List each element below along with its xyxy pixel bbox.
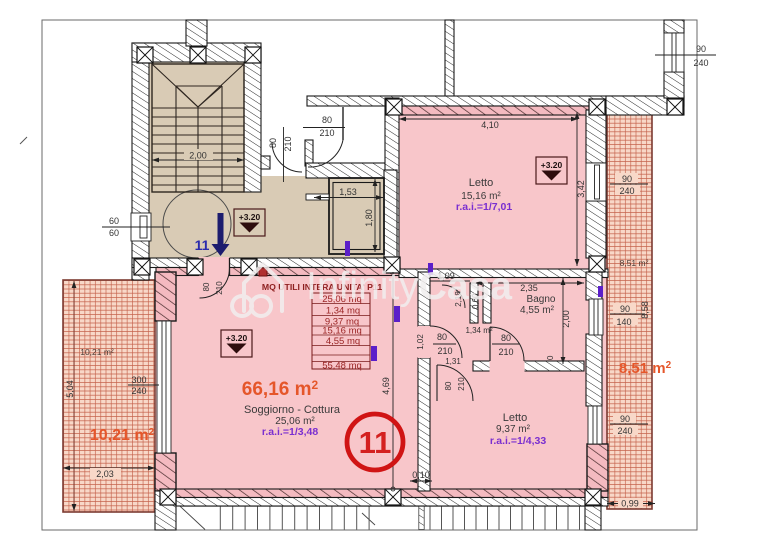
svg-text:10,21 m2: 10,21 m2 [90,427,155,444]
svg-text:210: 210 [319,128,334,138]
svg-text:60: 60 [109,216,119,226]
svg-text:5,04: 5,04 [65,380,75,398]
svg-text:1,34 m²: 1,34 m² [465,326,492,335]
svg-text:0,99: 0,99 [621,499,639,509]
svg-text:r.a.i.=1/3,48: r.a.i.=1/3,48 [262,426,319,438]
svg-text:1,02: 1,02 [416,334,425,350]
svg-text:1,80: 1,80 [364,209,374,227]
svg-text:4,55 m²: 4,55 m² [520,305,555,316]
svg-text:8,58: 8,58 [640,301,650,319]
svg-text:210: 210 [215,281,224,295]
svg-text:210: 210 [498,347,513,357]
svg-text:210: 210 [437,346,452,356]
svg-text:80: 80 [444,381,453,390]
svg-text:Letto: Letto [503,412,527,424]
svg-text:66,16 m2: 66,16 m2 [242,378,319,400]
svg-text:90: 90 [622,174,632,184]
svg-text:11: 11 [195,237,210,253]
svg-text:90: 90 [696,44,706,54]
svg-text:80: 80 [322,115,332,125]
svg-text:InfinityCasa: InfinityCasa [306,265,512,308]
svg-text:4,10: 4,10 [481,120,499,130]
svg-text:240: 240 [619,186,634,196]
svg-text:210: 210 [283,136,293,151]
svg-text:300: 300 [131,375,146,385]
svg-text:9,37 m²: 9,37 m² [496,424,531,435]
svg-text:80: 80 [501,333,511,343]
svg-text:80: 80 [437,332,447,342]
svg-text:r.a.i.=1/7,01: r.a.i.=1/7,01 [456,201,513,213]
svg-text:80: 80 [268,138,278,148]
svg-text:2,00: 2,00 [561,310,571,328]
svg-text:0: 0 [546,355,555,360]
svg-text:240: 240 [617,426,632,436]
svg-text:8,51 m2: 8,51 m2 [619,360,672,377]
svg-text:3,42: 3,42 [576,180,586,198]
svg-text:4,69: 4,69 [381,377,391,395]
svg-text:4,55 mq: 4,55 mq [326,336,360,347]
svg-text:55,48 mq: 55,48 mq [322,361,362,372]
svg-text:90: 90 [620,414,630,424]
svg-text:140: 140 [616,317,631,327]
svg-text:240: 240 [693,58,708,68]
svg-text:11: 11 [359,425,392,460]
svg-text:1,53: 1,53 [339,187,357,197]
svg-text:2,00: 2,00 [189,151,207,161]
svg-text:80: 80 [202,282,211,291]
svg-text:8,51 m²: 8,51 m² [620,258,649,268]
svg-text:240: 240 [131,386,146,396]
svg-text:2,35: 2,35 [520,283,538,293]
svg-text:1,31: 1,31 [445,357,461,366]
svg-text:Letto: Letto [469,177,493,189]
svg-text:2,03: 2,03 [96,469,114,479]
svg-text:r.a.i.=1/4,33: r.a.i.=1/4,33 [490,435,547,447]
svg-text:Bagno: Bagno [527,294,556,305]
svg-text:15,16 mq: 15,16 mq [322,326,362,337]
svg-text:210: 210 [457,377,466,391]
svg-text:60: 60 [109,228,119,238]
svg-text:Soggiorno - Cottura: Soggiorno - Cottura [244,404,341,416]
svg-text:0,10: 0,10 [412,470,430,480]
svg-text:90: 90 [620,304,630,314]
svg-text:10,21 m²: 10,21 m² [80,347,114,357]
